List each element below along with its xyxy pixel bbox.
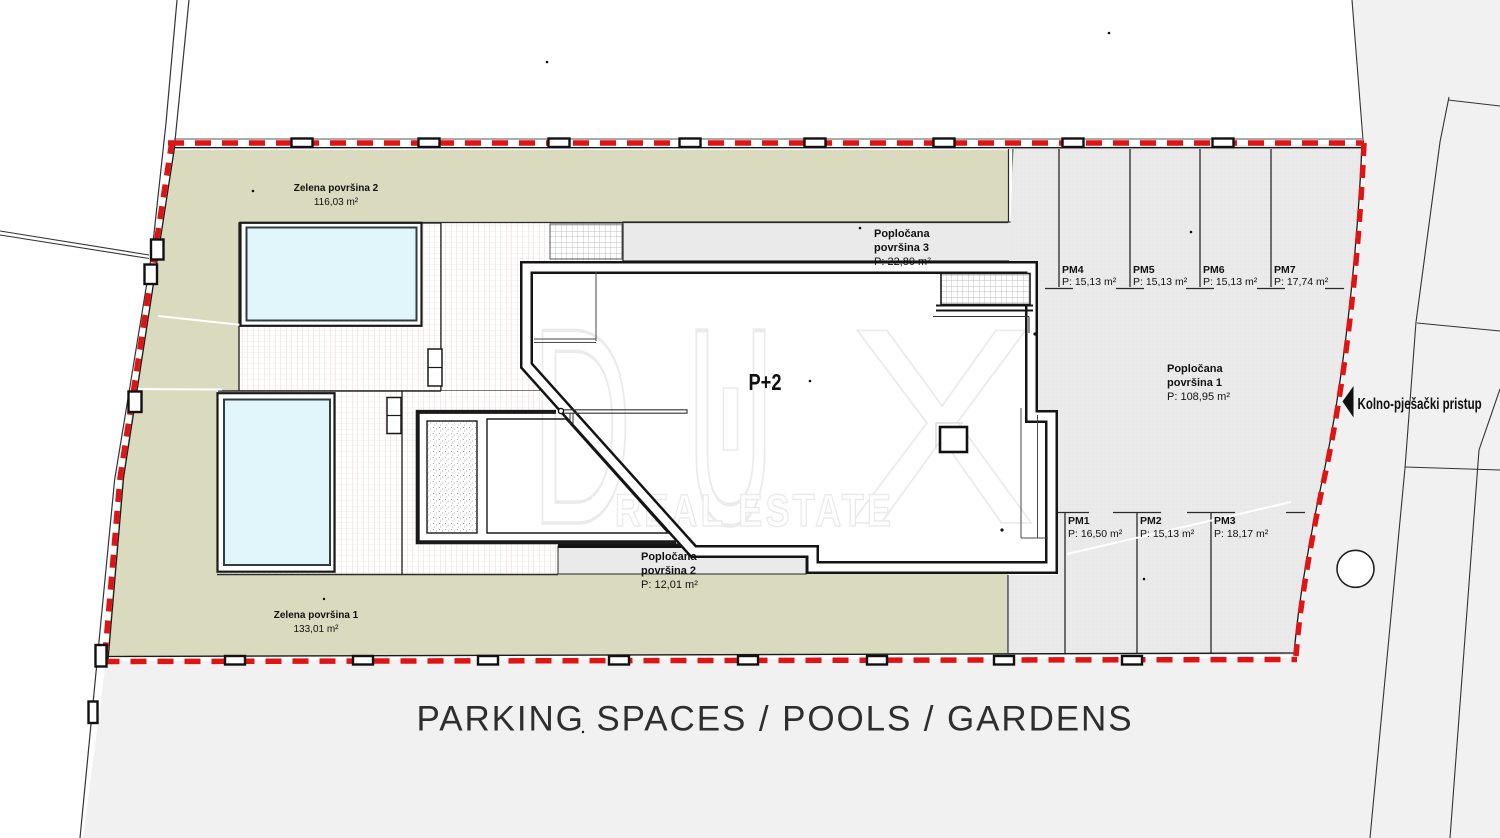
- svg-text:P+2: P+2: [749, 369, 782, 395]
- svg-text:površina 3: površina 3: [874, 242, 929, 254]
- svg-text:PM1: PM1: [1068, 515, 1090, 527]
- svg-text:PM7: PM7: [1274, 264, 1296, 276]
- svg-text:P: 15,13 m²: P: 15,13 m²: [1140, 528, 1195, 540]
- svg-text:Popločana: Popločana: [641, 551, 698, 563]
- svg-text:PM5: PM5: [1133, 264, 1155, 276]
- svg-text:Kolno-pješački pristup: Kolno-pješački pristup: [1358, 394, 1482, 412]
- svg-text:površina 2: površina 2: [641, 565, 696, 577]
- svg-text:Zelena površina 1: Zelena površina 1: [274, 610, 359, 621]
- svg-text:PARKING SPACES / POOLS / GARDE: PARKING SPACES / POOLS / GARDENS: [417, 700, 1134, 739]
- svg-text:P: 108,95 m²: P: 108,95 m²: [1167, 391, 1230, 403]
- svg-text:Popločana: Popločana: [1167, 363, 1224, 375]
- svg-text:PM4: PM4: [1062, 264, 1084, 276]
- svg-text:PM2: PM2: [1140, 515, 1162, 527]
- svg-text:133,01 m²: 133,01 m²: [293, 624, 339, 635]
- svg-text:P: 18,17 m²: P: 18,17 m²: [1214, 528, 1269, 540]
- svg-text:P: 15,13 m²: P: 15,13 m²: [1203, 276, 1258, 288]
- svg-text:površina 1: površina 1: [1167, 377, 1222, 389]
- svg-text:116,03 m²: 116,03 m²: [314, 197, 359, 208]
- svg-text:P: 12,01 m²: P: 12,01 m²: [641, 579, 698, 591]
- svg-text:P: 22,80 m²: P: 22,80 m²: [874, 256, 931, 268]
- svg-text:PM3: PM3: [1214, 515, 1236, 527]
- svg-text:P: 15,13 m²: P: 15,13 m²: [1133, 276, 1188, 288]
- svg-text:Zelena površina 2: Zelena površina 2: [294, 183, 379, 194]
- svg-text:P: 17,74 m²: P: 17,74 m²: [1274, 276, 1329, 288]
- svg-text:PM6: PM6: [1203, 264, 1225, 276]
- svg-text:P: 16,50 m²: P: 16,50 m²: [1068, 528, 1123, 540]
- svg-text:Popločana: Popločana: [874, 228, 931, 240]
- svg-text:P: 15,13 m²: P: 15,13 m²: [1062, 276, 1117, 288]
